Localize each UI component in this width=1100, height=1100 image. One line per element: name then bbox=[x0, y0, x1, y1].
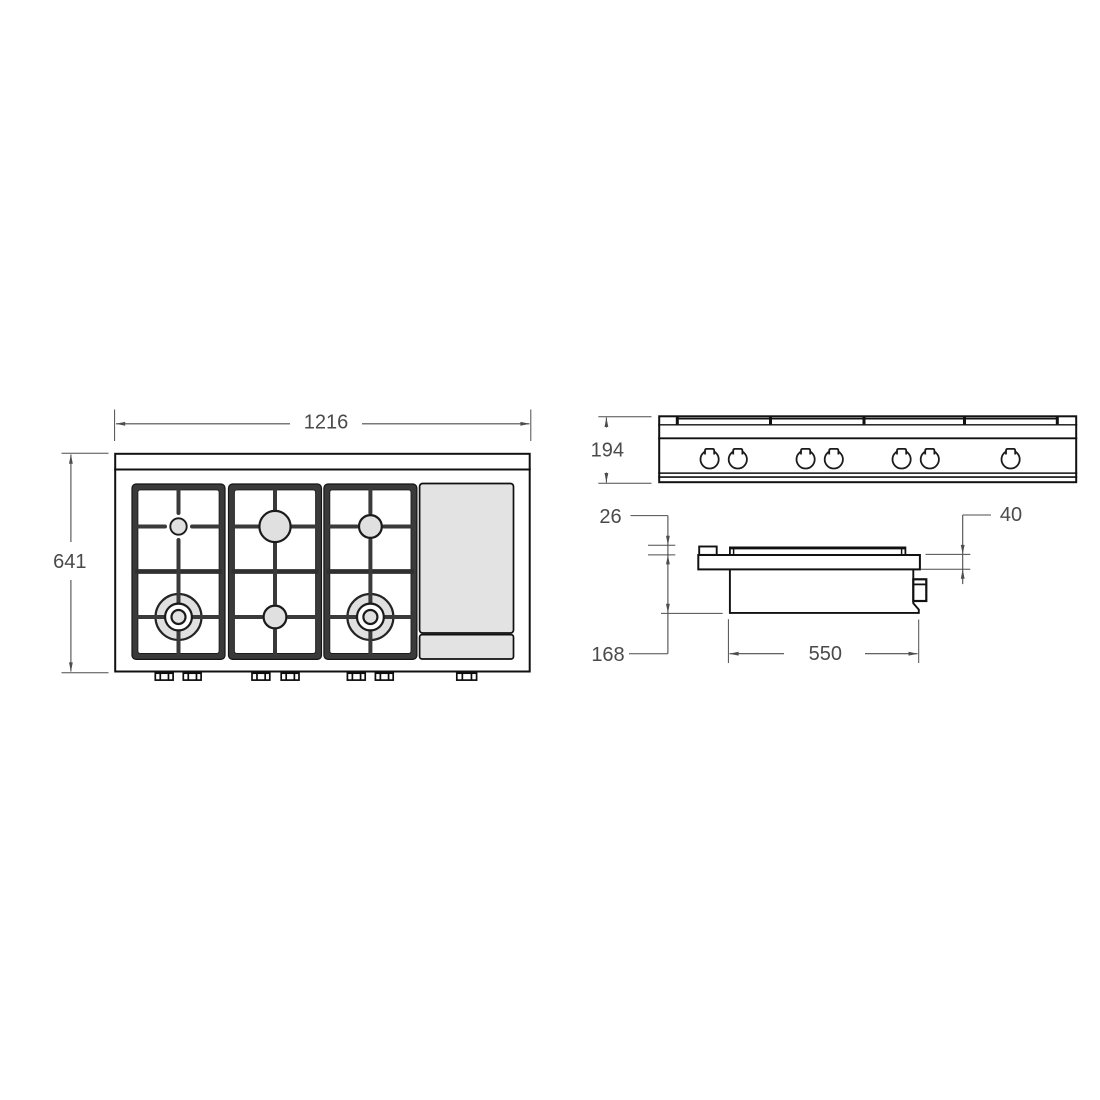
svg-text:194: 194 bbox=[591, 440, 624, 462]
svg-text:168: 168 bbox=[591, 644, 624, 666]
svg-text:1216: 1216 bbox=[304, 412, 349, 434]
svg-text:26: 26 bbox=[599, 506, 621, 528]
svg-text:641: 641 bbox=[53, 551, 86, 573]
svg-text:550: 550 bbox=[809, 643, 842, 665]
svg-text:40: 40 bbox=[1000, 504, 1022, 526]
